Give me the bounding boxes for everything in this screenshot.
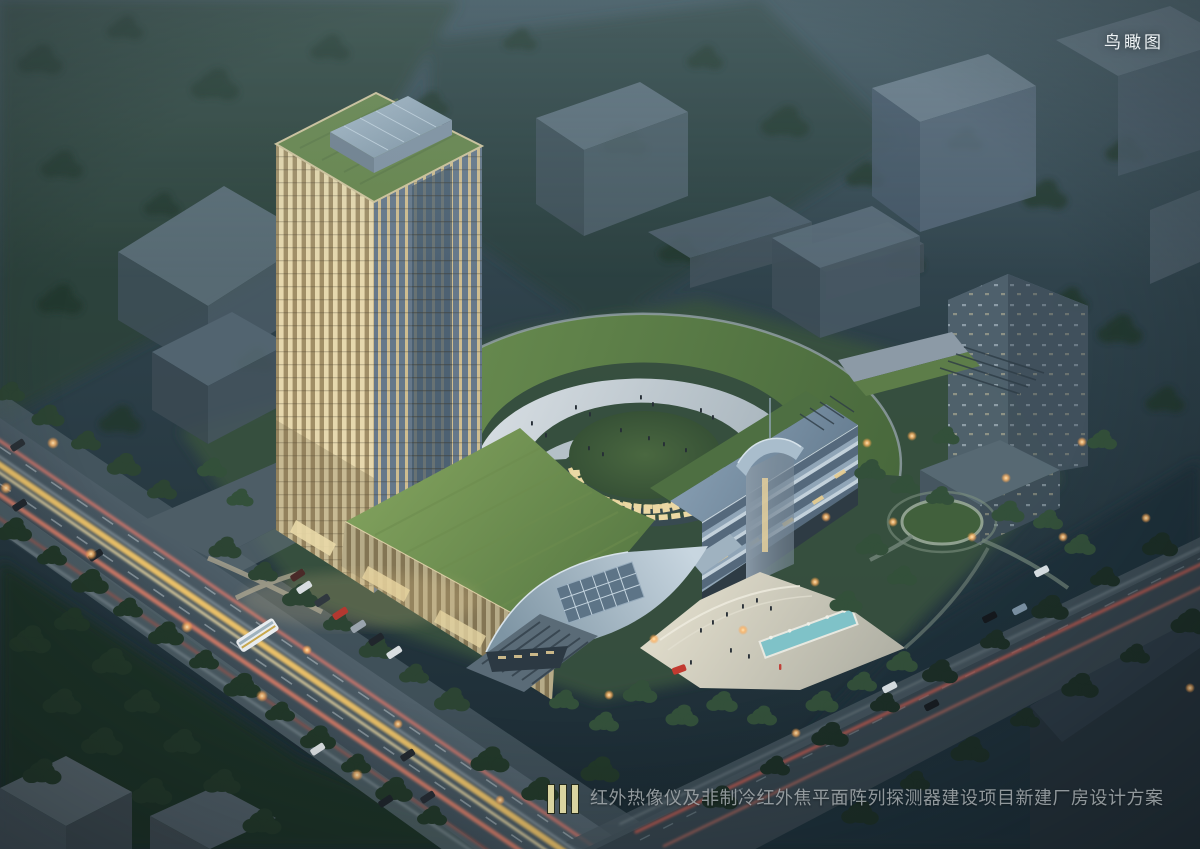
logo-bar [559,784,567,814]
atmosphere [0,0,1200,849]
logo-bar [547,784,555,814]
logo-icon [547,783,579,814]
aerial-rendering: 鸟瞰图 红外热像仪及非制冷红外焦平面阵列探测器建设项目新建厂房设计方案 [0,0,1200,849]
project-caption: 红外热像仪及非制冷红外焦平面阵列探测器建设项目新建厂房设计方案 [547,783,1164,814]
logo-bar [571,784,579,814]
view-label: 鸟瞰图 [1104,28,1164,53]
rendering-scene [0,0,1200,849]
caption-text: 红外热像仪及非制冷红外焦平面阵列探测器建设项目新建厂房设计方案 [590,783,1164,814]
